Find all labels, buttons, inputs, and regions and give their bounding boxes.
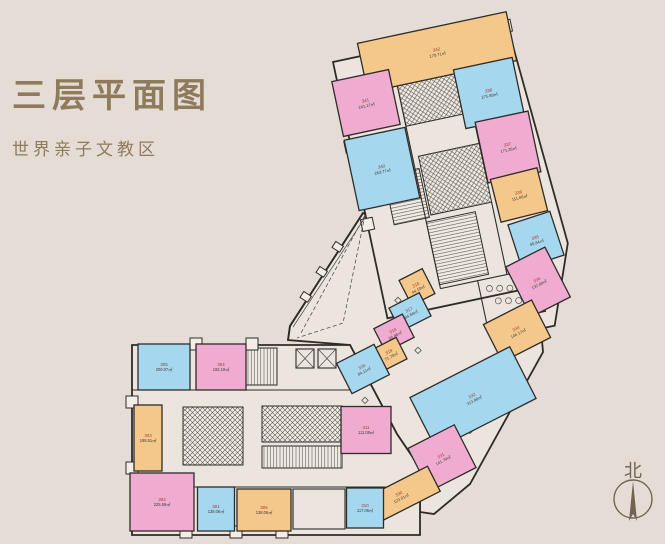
room-341: 341241.17㎡ [332,70,400,137]
room-305: 305200.07㎡ [138,344,190,390]
room-area: 138.06㎡ [208,508,225,514]
room-area: 225.59㎡ [154,501,171,507]
page-title: 三层平面图 [12,68,212,117]
column-tab [246,338,258,350]
room-303: 303195.51㎡ [134,405,162,471]
room-area: 200.07㎡ [156,366,173,372]
room-area: 195.51㎡ [140,437,157,443]
column-tab [360,217,374,231]
page-subtitle: 世界亲子文教区 [12,135,212,160]
room-area: 192.19㎡ [213,366,230,372]
elevator-core-mid [418,143,491,215]
room-302: 302225.59㎡ [130,473,194,531]
floor-plan-page: 342170.71㎡341241.17㎡340263.77㎡338275.89㎡… [0,0,665,544]
compass-north-label: 北 [624,461,642,481]
room-310: 310117.06㎡ [347,488,384,528]
room-area: 117.06㎡ [357,507,373,513]
compass-needle-icon [629,481,637,521]
room-301: 301138.06㎡ [198,487,235,531]
room-area: 111.08㎡ [358,429,374,435]
north-compass: 北 [614,461,652,521]
room-304: 304192.19㎡ [196,344,246,390]
title-block: 三层平面图 世界亲子文教区 [12,68,212,160]
elevator-core-b [262,406,342,442]
elevator-core-a [183,407,243,465]
stair-core-b [262,446,342,468]
room-area: 138.06㎡ [256,509,273,515]
room-311: 311111.08㎡ [341,407,391,454]
room-306: 306138.06㎡ [237,489,291,531]
